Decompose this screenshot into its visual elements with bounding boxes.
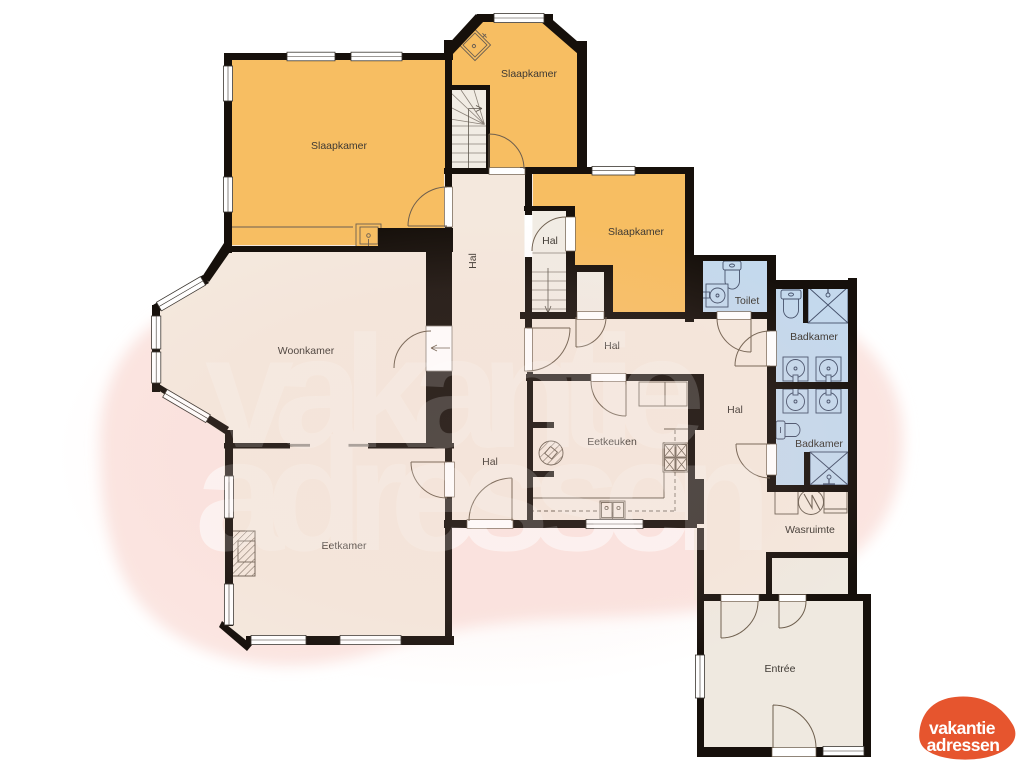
svg-text:Slaapkamer: Slaapkamer: [501, 68, 558, 80]
svg-text:adressen: adressen: [195, 405, 762, 584]
svg-text:Entrée: Entrée: [765, 663, 796, 675]
svg-text:Slaapkamer: Slaapkamer: [311, 140, 368, 152]
svg-text:adressen: adressen: [927, 735, 1000, 755]
